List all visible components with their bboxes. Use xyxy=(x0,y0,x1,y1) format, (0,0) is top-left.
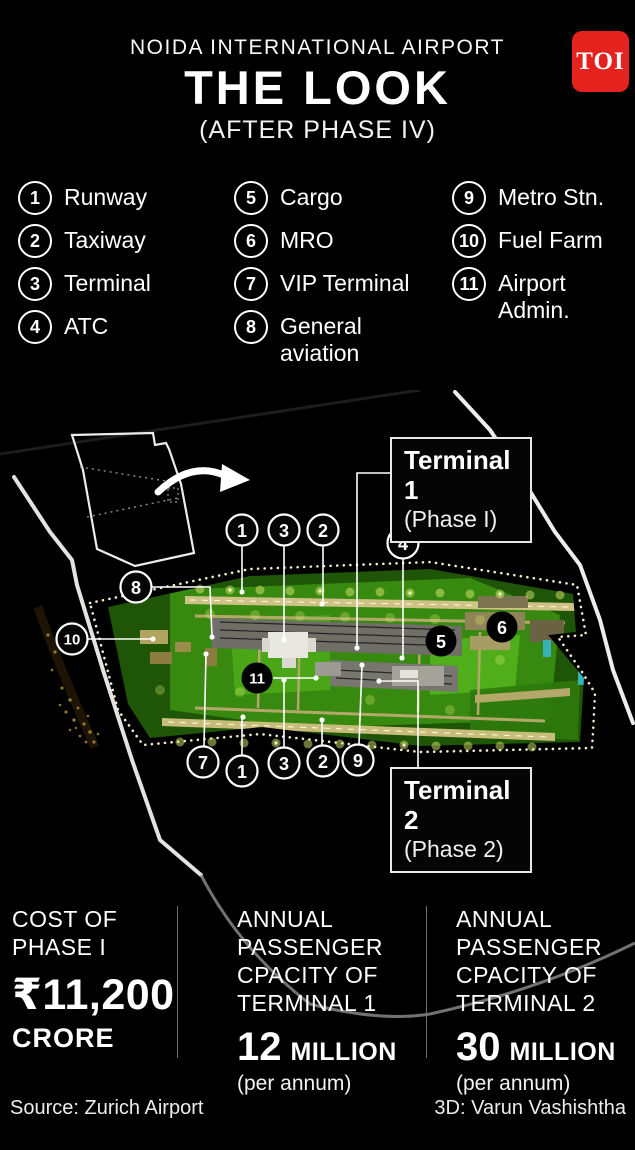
legend-item-terminal: 3 Terminal xyxy=(18,267,223,301)
legend-column-3: 9 Metro Stn. 10 Fuel Farm 11 Airport Adm… xyxy=(452,181,627,333)
source-credit: Source: Zurich Airport xyxy=(10,1097,203,1120)
legend-number-badge: 9 xyxy=(452,181,486,215)
legend-number-badge: 5 xyxy=(234,181,268,215)
svg-text:3: 3 xyxy=(279,521,289,541)
legend-number-badge: 11 xyxy=(452,267,486,301)
map-callout-runway-top: 1 xyxy=(227,515,258,546)
site-outline-inset xyxy=(72,433,194,566)
highway-lower-curve xyxy=(201,875,635,1016)
terminal1-title: Terminal 1 xyxy=(404,446,518,506)
toi-logo: TOI xyxy=(572,31,629,92)
svg-text:8: 8 xyxy=(131,578,141,598)
legend-label: Taxiway xyxy=(64,224,146,254)
legend-number-badge: 1 xyxy=(18,181,52,215)
legend-item-atc: 4 ATC xyxy=(18,310,223,344)
legend-column-1: 1 Runway 2 Taxiway 3 Terminal 4 ATC xyxy=(18,181,223,353)
legend-number-badge: 8 xyxy=(234,310,268,344)
terminal2-phase: (Phase 2) xyxy=(404,836,518,864)
svg-text:3: 3 xyxy=(279,754,289,774)
terminal2-title: Terminal 2 xyxy=(404,776,518,836)
map-callout-metro: 9 xyxy=(343,745,374,776)
metro-strip xyxy=(543,640,551,657)
map-callout-runway-bottom: 1 xyxy=(227,756,258,787)
legend-item-metro: 9 Metro Stn. xyxy=(452,181,627,215)
legend-label: ATC xyxy=(64,310,108,340)
legend-number-badge: 6 xyxy=(234,224,268,258)
legend-item-general-aviation: 8 General aviation xyxy=(234,310,434,367)
svg-text:7: 7 xyxy=(198,753,208,773)
svg-text:9: 9 xyxy=(353,751,363,771)
legend-column-2: 5 Cargo 6 MRO 7 VIP Terminal 8 General a… xyxy=(234,181,434,376)
svg-text:2: 2 xyxy=(318,521,328,541)
map-callout-general-aviation: 8 xyxy=(121,572,152,603)
map-callout-terminal-bottom: 3 xyxy=(269,748,300,779)
artist-credit: 3D: Varun Vashishtha xyxy=(434,1097,626,1120)
map-callout-vip-terminal: 7 xyxy=(188,747,219,778)
svg-text:1: 1 xyxy=(237,762,247,782)
legend-label: Airport Admin. xyxy=(498,267,626,324)
legend-number-badge: 3 xyxy=(18,267,52,301)
legend-item-runway: 1 Runway xyxy=(18,181,223,215)
airport-map: 1 3 2 4 8 10 11 5 xyxy=(0,390,635,1090)
map-callout-taxiway-top: 2 xyxy=(308,515,339,546)
legend-label: Runway xyxy=(64,181,147,211)
map-callout-airport-admin: 11 xyxy=(242,663,273,694)
kicker-title: NOIDA INTERNATIONAL AIRPORT xyxy=(0,36,635,60)
legend-item-mro: 6 MRO xyxy=(234,224,434,258)
legend-item-airport-admin: 11 Airport Admin. xyxy=(452,267,627,324)
airport-render xyxy=(90,562,595,752)
map-callout-mro: 6 xyxy=(487,612,518,643)
legend-label: Cargo xyxy=(280,181,343,211)
admin-building xyxy=(315,662,341,676)
svg-text:10: 10 xyxy=(64,632,81,649)
legend-label: Fuel Farm xyxy=(498,224,603,254)
legend-label: Terminal xyxy=(64,267,151,297)
map-callout-fuel-farm: 10 xyxy=(57,624,88,655)
map-callout-taxiway-bottom: 2 xyxy=(308,746,339,777)
faint-road-line xyxy=(0,390,420,454)
svg-text:6: 6 xyxy=(497,618,507,638)
toi-logo-text: TOI xyxy=(576,48,624,76)
legend-number-badge: 7 xyxy=(234,267,268,301)
terminal1-label-box: Terminal 1 (Phase I) xyxy=(390,437,532,543)
terminal1-building xyxy=(268,632,308,658)
map-callout-terminal-top: 3 xyxy=(269,515,300,546)
page-title: THE LOOK xyxy=(0,60,635,115)
legend-item-cargo: 5 Cargo xyxy=(234,181,434,215)
curved-arrow-icon xyxy=(158,464,250,492)
map-callout-cargo: 5 xyxy=(426,626,457,657)
legend-label: VIP Terminal xyxy=(280,267,410,297)
legend-item-fuel-farm: 10 Fuel Farm xyxy=(452,224,627,258)
legend-label: General aviation xyxy=(280,310,425,367)
infographic-page: NOIDA INTERNATIONAL AIRPORT THE LOOK (AF… xyxy=(0,0,635,1150)
terminal2-label-box: Terminal 2 (Phase 2) xyxy=(390,767,532,873)
svg-text:5: 5 xyxy=(436,632,446,652)
svg-text:2: 2 xyxy=(318,752,328,772)
page-subtitle: (AFTER PHASE IV) xyxy=(0,116,635,145)
legend-item-taxiway: 2 Taxiway xyxy=(18,224,223,258)
legend-label: MRO xyxy=(280,224,334,254)
legend-number-badge: 4 xyxy=(18,310,52,344)
legend-number-badge: 10 xyxy=(452,224,486,258)
legend-label: Metro Stn. xyxy=(498,181,604,211)
svg-text:1: 1 xyxy=(237,521,247,541)
terminal1-phase: (Phase I) xyxy=(404,506,518,534)
legend-item-vip-terminal: 7 VIP Terminal xyxy=(234,267,434,301)
svg-text:11: 11 xyxy=(249,671,265,688)
legend-number-badge: 2 xyxy=(18,224,52,258)
